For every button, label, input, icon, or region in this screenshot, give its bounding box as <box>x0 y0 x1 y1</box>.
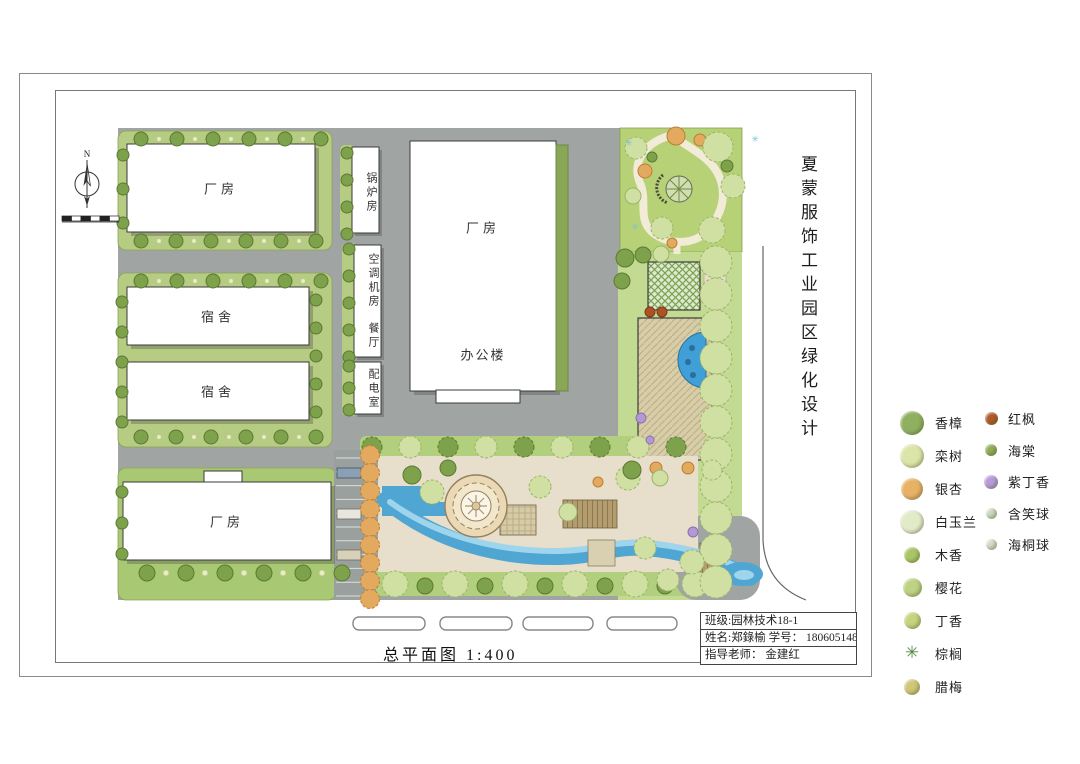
tree-icon <box>904 547 920 563</box>
tree-icon <box>985 444 997 456</box>
legend-item: 海棠 <box>983 435 1050 467</box>
legend-item: 银杏 <box>898 472 977 505</box>
label-factory-bottom: 厂房 <box>210 512 244 531</box>
legend-item: 含笑球 <box>983 498 1050 530</box>
legend-label: 樱花 <box>935 578 963 597</box>
sheet-title: 夏蒙服饰工业园区绿化设计 <box>794 155 820 445</box>
scale-bar <box>62 216 119 222</box>
label-power-room: 配电室 <box>354 366 381 412</box>
tree-symbol-icon <box>898 679 926 695</box>
tree-icon <box>903 578 922 597</box>
label-dorm-2: 宿舍 <box>201 382 235 401</box>
plant-legend-column-2: 红枫海棠紫丁香含笑球海桐球 <box>983 403 1050 561</box>
tree-icon <box>901 478 923 500</box>
tree-icon <box>904 679 920 695</box>
tree-symbol-icon <box>983 444 999 456</box>
label-factory-main: 厂房 <box>466 218 500 237</box>
svg-text:✳: ✳ <box>631 222 639 232</box>
tree-icon <box>900 411 924 435</box>
legend-label: 丁香 <box>935 611 963 630</box>
tree-symbol-icon: ✳ <box>898 645 926 662</box>
legend-label: 含笑球 <box>1008 504 1050 523</box>
legend-item: 栾树 <box>898 439 977 472</box>
label-hvac-room: 空调机房 <box>354 250 381 312</box>
title-block-teacher-row: 指导老师： 金建红 <box>701 646 856 663</box>
tree-icon <box>984 475 998 489</box>
plan-caption: 总平面图 1:400 <box>383 641 517 665</box>
plant-legend-column-1: 香樟栾树银杏白玉兰木香樱花丁香✳棕榈腊梅 <box>898 406 977 703</box>
title-block: 班级:园林技术18-1 姓名:郑錄榆 学号： 180605148 指导老师： 金… <box>700 612 857 665</box>
legend-item: 腊梅 <box>898 670 977 703</box>
title-block-class-row: 班级:园林技术18-1 <box>701 613 856 629</box>
legend-label: 白玉兰 <box>935 512 977 531</box>
legend-item: ✳棕榈 <box>898 637 977 670</box>
legend-label: 腊梅 <box>935 677 963 696</box>
tree-symbol-icon <box>898 478 926 500</box>
tree-icon <box>900 510 924 534</box>
palm-tree-icon: ✳ <box>905 645 919 662</box>
legend-label: 木香 <box>935 545 963 564</box>
legend-label: 棕榈 <box>935 644 963 663</box>
svg-text:N: N <box>84 149 91 159</box>
legend-item: 紫丁香 <box>983 466 1050 498</box>
legend-item: 红枫 <box>983 403 1050 435</box>
tree-symbol-icon <box>898 411 926 435</box>
label-dorm-1: 宿舍 <box>201 307 235 326</box>
tree-icon <box>986 508 997 519</box>
tree-symbol-icon <box>898 510 926 534</box>
legend-label: 紫丁香 <box>1008 472 1050 491</box>
label-factory-top-left: 厂房 <box>204 179 238 198</box>
legend-item: 木香 <box>898 538 977 571</box>
label-office: 办公楼 <box>460 345 505 364</box>
tree-symbol-icon <box>983 539 999 550</box>
svg-text:✳: ✳ <box>625 138 633 148</box>
tree-symbol-icon <box>983 475 999 489</box>
drawing-sheet: ✳✳✳ N 厂房 宿舍 宿舍 厂房 厂房 办公楼 锅炉房 空调机房 餐厅 <box>0 0 1080 764</box>
north-arrow: N <box>75 149 99 208</box>
label-boiler-room: 锅炉房 <box>352 158 379 228</box>
legend-item: 丁香 <box>898 604 977 637</box>
tree-icon <box>986 539 997 550</box>
legend-item: 海桐球 <box>983 529 1050 561</box>
legend-item: 樱花 <box>898 571 977 604</box>
label-canteen: 餐厅 <box>354 318 381 354</box>
tree-icon <box>900 444 924 468</box>
legend-item: 白玉兰 <box>898 505 977 538</box>
legend-label: 红枫 <box>1008 409 1036 428</box>
legend-label: 银杏 <box>935 479 963 498</box>
legend-label: 香樟 <box>935 413 963 432</box>
tree-symbol-icon <box>898 612 926 629</box>
tree-symbol-icon <box>983 412 999 425</box>
tree-symbol-icon <box>898 547 926 563</box>
tree-symbol-icon <box>983 508 999 519</box>
legend-label: 海棠 <box>1008 441 1036 460</box>
legend-label: 海桐球 <box>1008 535 1050 554</box>
tree-icon <box>985 412 998 425</box>
parking-islands <box>353 617 677 630</box>
tree-symbol-icon <box>898 578 926 597</box>
title-block-name-row: 姓名:郑錄榆 学号： 180605148 <box>701 629 856 646</box>
legend-label: 栾树 <box>935 446 963 465</box>
legend-item: 香樟 <box>898 406 977 439</box>
tree-symbol-icon <box>898 444 926 468</box>
svg-text:✳: ✳ <box>751 134 759 144</box>
tree-icon <box>904 612 921 629</box>
